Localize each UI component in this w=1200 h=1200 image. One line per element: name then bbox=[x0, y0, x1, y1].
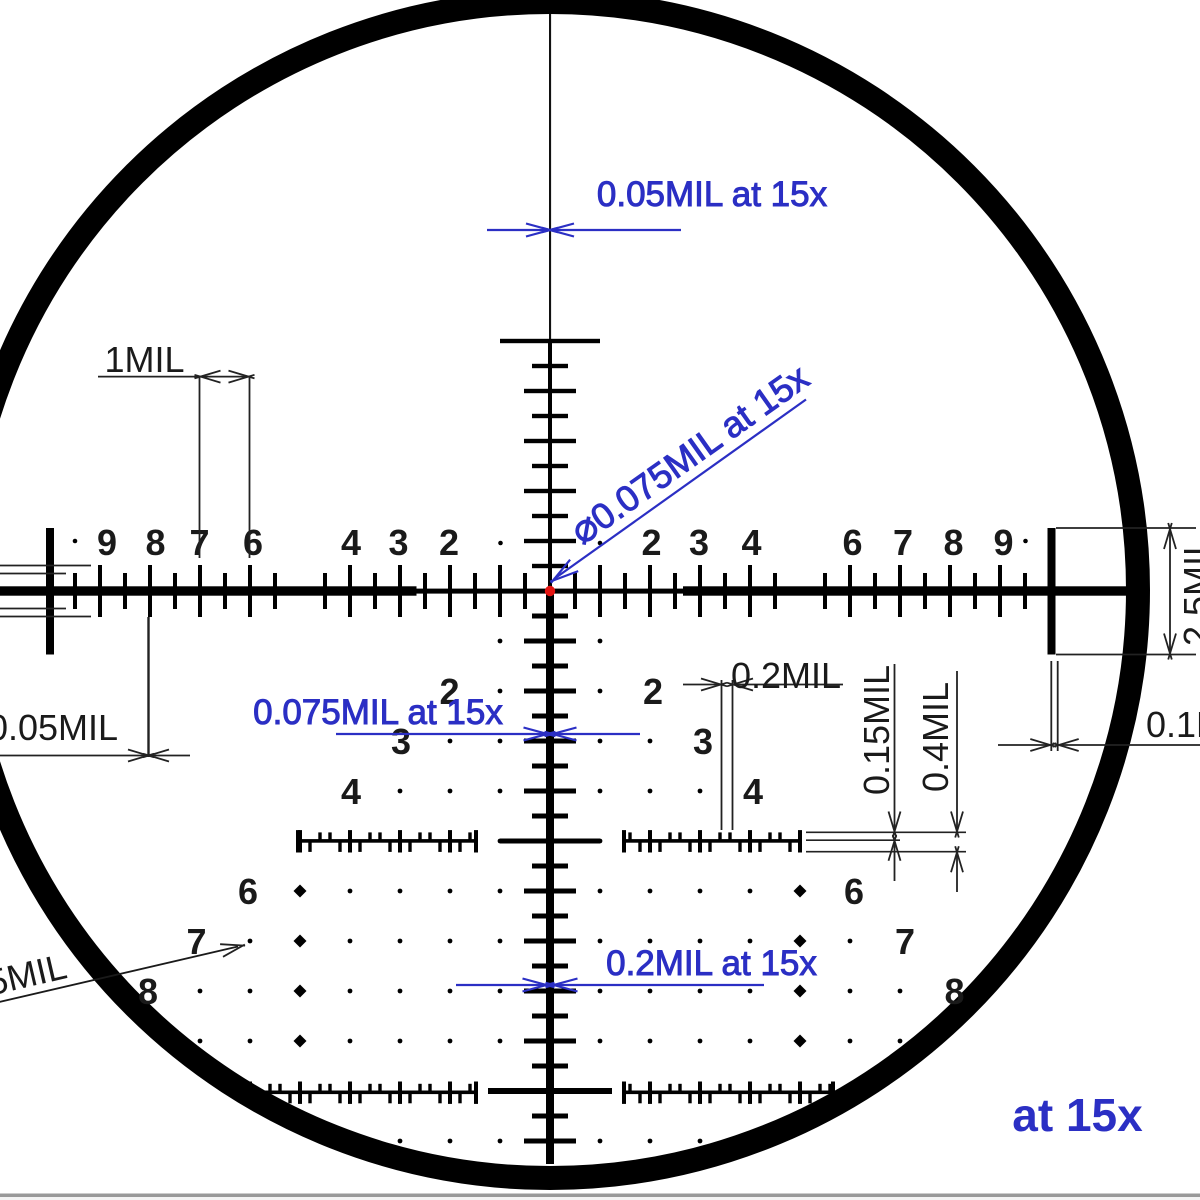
svg-text:7: 7 bbox=[895, 921, 915, 962]
svg-text:9: 9 bbox=[97, 522, 117, 563]
svg-text:9: 9 bbox=[993, 522, 1013, 563]
svg-text:6: 6 bbox=[842, 522, 862, 563]
svg-text:6: 6 bbox=[844, 871, 864, 912]
svg-text:1MIL: 1MIL bbox=[104, 339, 184, 380]
svg-text:2: 2 bbox=[439, 522, 459, 563]
svg-text:0.05MIL at 15x: 0.05MIL at 15x bbox=[597, 175, 828, 214]
svg-text:7: 7 bbox=[893, 522, 913, 563]
svg-text:8: 8 bbox=[944, 971, 964, 1012]
svg-text:2: 2 bbox=[641, 522, 661, 563]
svg-text:0.15MIL: 0.15MIL bbox=[856, 665, 897, 795]
svg-text:3: 3 bbox=[388, 522, 408, 563]
svg-text:6: 6 bbox=[243, 522, 263, 563]
svg-text:0.5MIL: 0.5MIL bbox=[0, 945, 70, 1010]
svg-text:8: 8 bbox=[138, 971, 158, 1012]
svg-text:at 15x: at 15x bbox=[1012, 1089, 1143, 1141]
svg-text:6: 6 bbox=[238, 871, 258, 912]
svg-text:3: 3 bbox=[689, 522, 709, 563]
svg-text:0.2MIL: 0.2MIL bbox=[731, 655, 841, 696]
svg-text:0.075MIL at 15x: 0.075MIL at 15x bbox=[253, 693, 503, 732]
svg-text:4: 4 bbox=[743, 771, 763, 812]
svg-text:4: 4 bbox=[741, 522, 761, 563]
svg-text:3: 3 bbox=[693, 721, 713, 762]
svg-text:2: 2 bbox=[643, 671, 663, 712]
svg-text:0.05MIL: 0.05MIL bbox=[0, 707, 118, 748]
svg-text:8: 8 bbox=[145, 522, 165, 563]
svg-text:4: 4 bbox=[341, 771, 361, 812]
svg-text:8: 8 bbox=[943, 522, 963, 563]
svg-text:4: 4 bbox=[341, 522, 361, 563]
svg-text:0.1MIL: 0.1MIL bbox=[1146, 704, 1200, 745]
svg-text:0.4MIL: 0.4MIL bbox=[915, 682, 956, 792]
svg-text:0.2MIL at 15x: 0.2MIL at 15x bbox=[606, 944, 817, 983]
svg-text:2.5MIL: 2.5MIL bbox=[1176, 536, 1200, 646]
